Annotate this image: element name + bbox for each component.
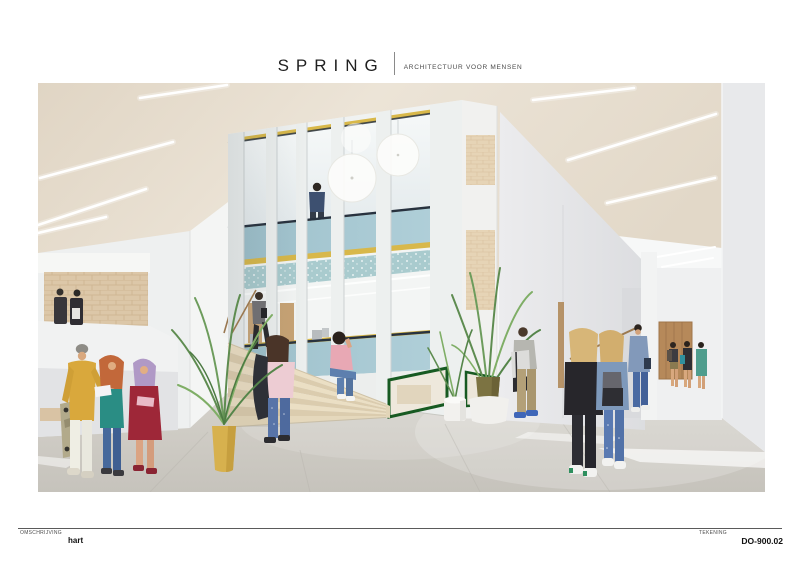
description-label: OMSCHRIJVING [20, 530, 62, 536]
teal-book [680, 355, 685, 364]
brick-panel-lower [466, 230, 495, 310]
right-edge-wall [722, 83, 765, 452]
pink-book [137, 396, 155, 407]
round-planter [469, 396, 509, 424]
architectural-rendering [38, 83, 765, 492]
brand-divider [394, 52, 395, 75]
drawing-sheet: { "header": { "brand": "SPRING", "taglin… [0, 0, 800, 566]
wood-trim [558, 302, 564, 388]
brand-tagline: ARCHITECTUUR VOOR MENSEN [404, 65, 523, 76]
white-cylinder-stool [444, 397, 466, 422]
rendering-svg [38, 83, 765, 492]
brick-panel-upper [466, 135, 495, 185]
drawing-number: DO-900.02 [741, 536, 783, 546]
brand-wordmark: SPRING [278, 57, 385, 75]
title-block-rule [18, 528, 782, 529]
drawing-label: TEKENING [699, 530, 727, 536]
description-value: hart [68, 536, 83, 545]
header-lockup: SPRING ARCHITECTUUR VOOR MENSEN [0, 52, 800, 75]
notebook [644, 358, 651, 369]
